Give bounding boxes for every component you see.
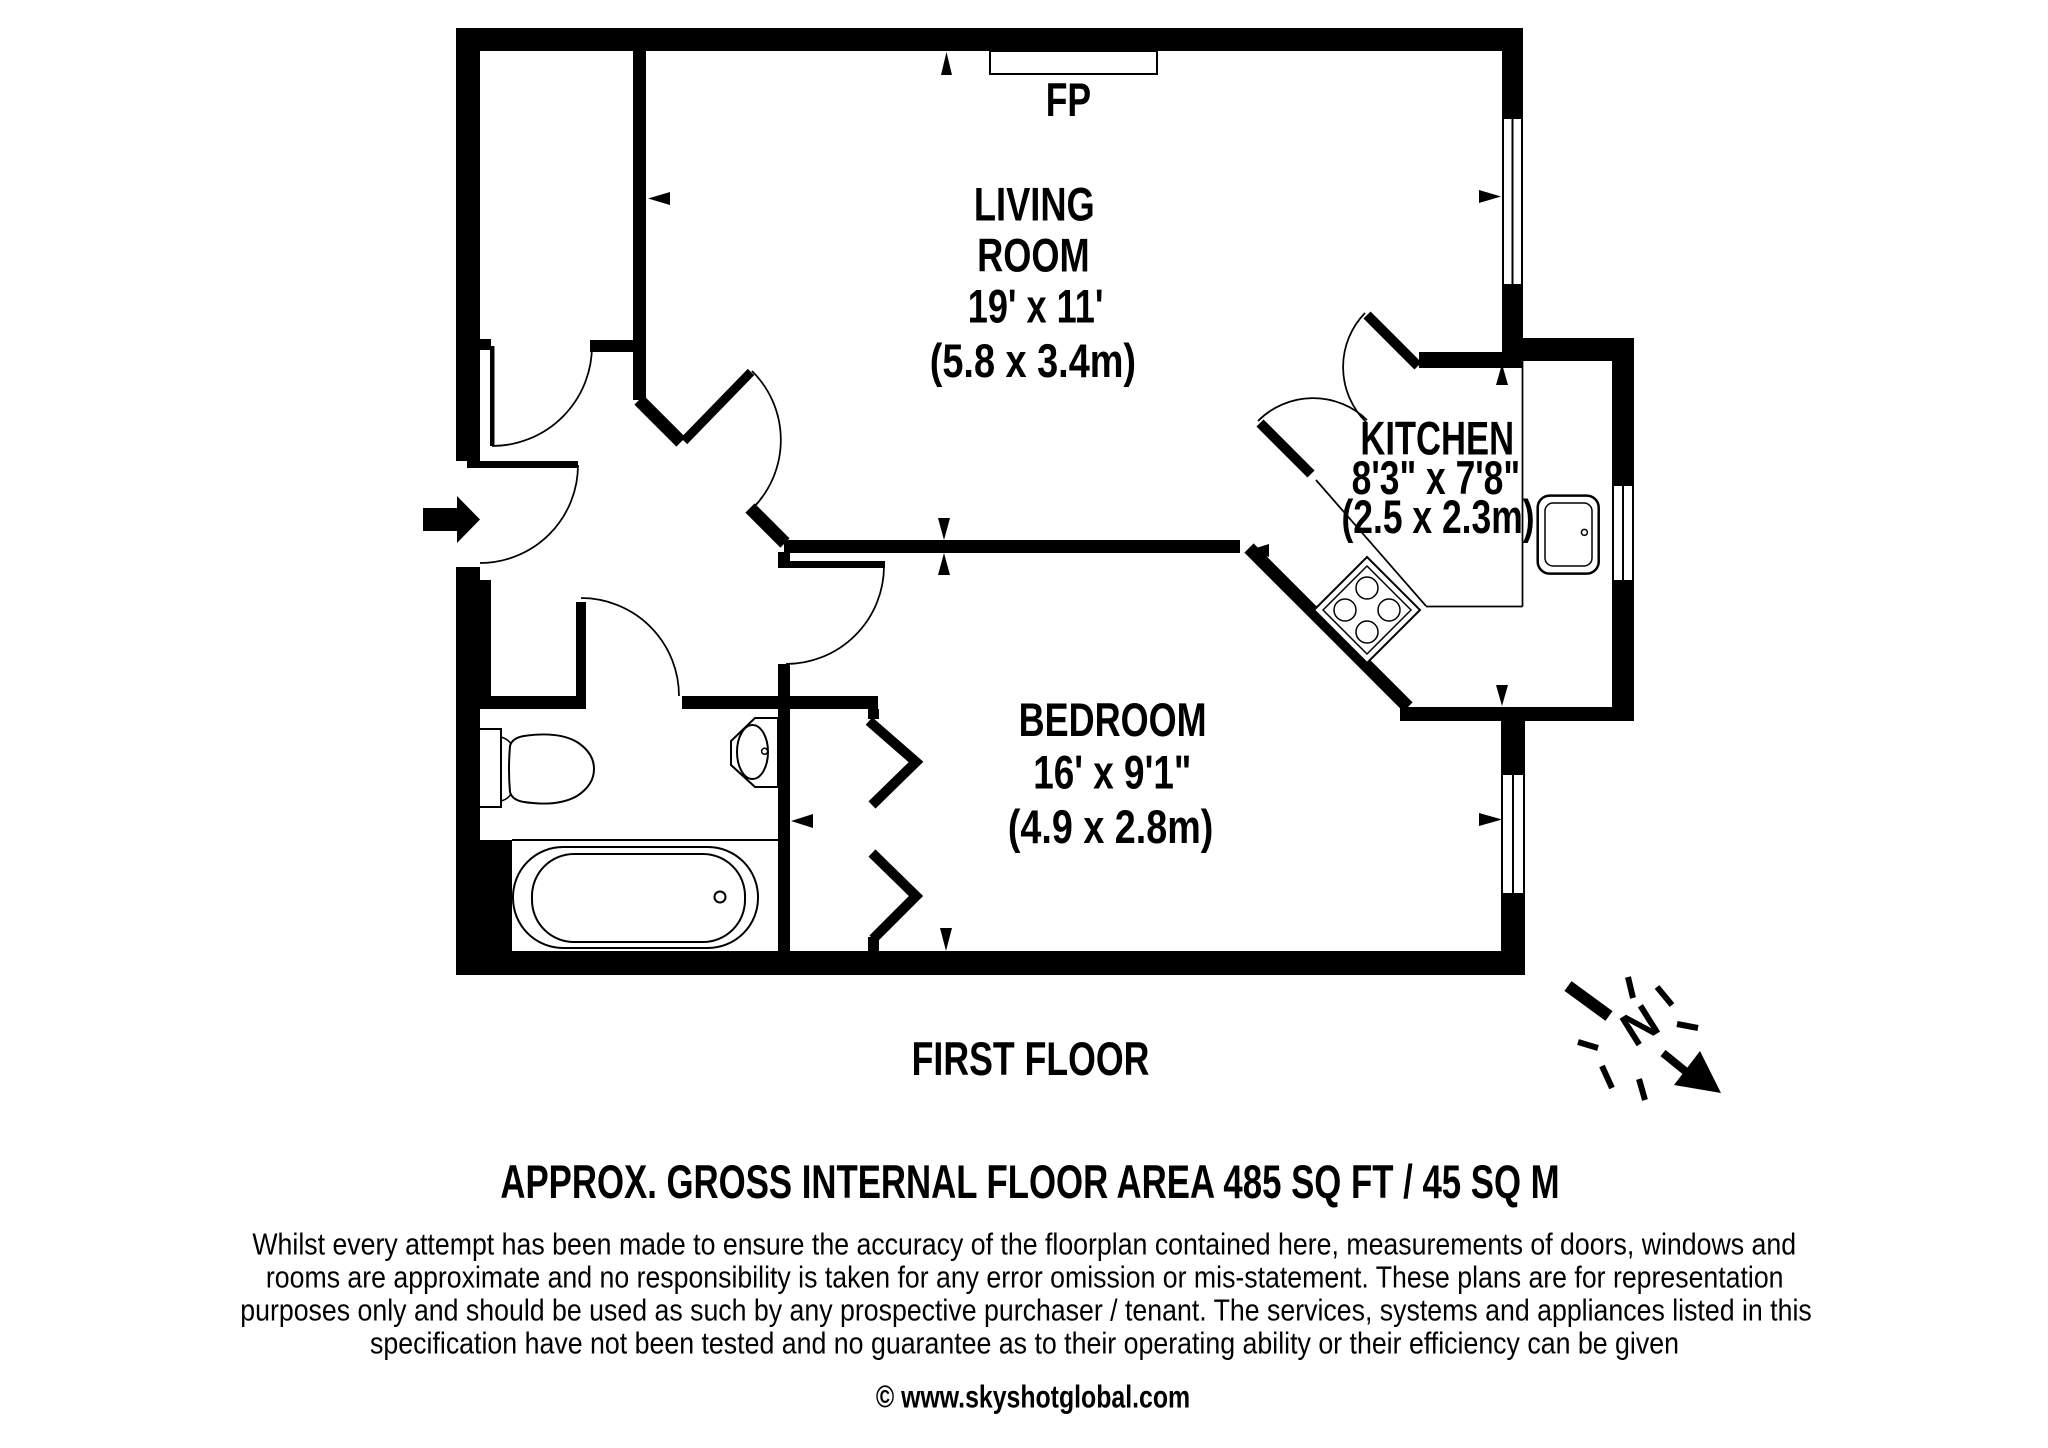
svg-text:© www.skyshotglobal.com: © www.skyshotglobal.com bbox=[876, 1380, 1190, 1416]
svg-text:(2.5 x 2.3m): (2.5 x 2.3m) bbox=[1342, 490, 1535, 543]
svg-text:rooms are approximate and no r: rooms are approximate and no responsibil… bbox=[266, 1261, 1784, 1295]
svg-text:16' x 9'1": 16' x 9'1" bbox=[1033, 746, 1191, 798]
svg-text:(5.8 x 3.4m): (5.8 x 3.4m) bbox=[930, 335, 1136, 388]
svg-text:APPROX. GROSS INTERNAL FLOOR A: APPROX. GROSS INTERNAL FLOOR AREA 485 SQ… bbox=[500, 1156, 1559, 1208]
svg-text:(4.9 x 2.8m): (4.9 x 2.8m) bbox=[1008, 801, 1214, 854]
svg-text:19' x 11': 19' x 11' bbox=[968, 280, 1104, 333]
svg-text:specification have not been te: specification have not been tested and n… bbox=[370, 1327, 1679, 1361]
svg-text:ROOM: ROOM bbox=[977, 229, 1090, 282]
svg-text:purposes only and should be u: purposes only and should be used as such… bbox=[240, 1294, 1811, 1328]
svg-text:BEDROOM: BEDROOM bbox=[1019, 693, 1207, 746]
svg-text:FIRST FLOOR: FIRST FLOOR bbox=[912, 1032, 1150, 1085]
svg-text:FP: FP bbox=[1046, 73, 1091, 126]
svg-text:LIVING: LIVING bbox=[974, 178, 1095, 231]
svg-text:Whilst every attempt has been: Whilst every attempt has been made to en… bbox=[252, 1228, 1796, 1262]
